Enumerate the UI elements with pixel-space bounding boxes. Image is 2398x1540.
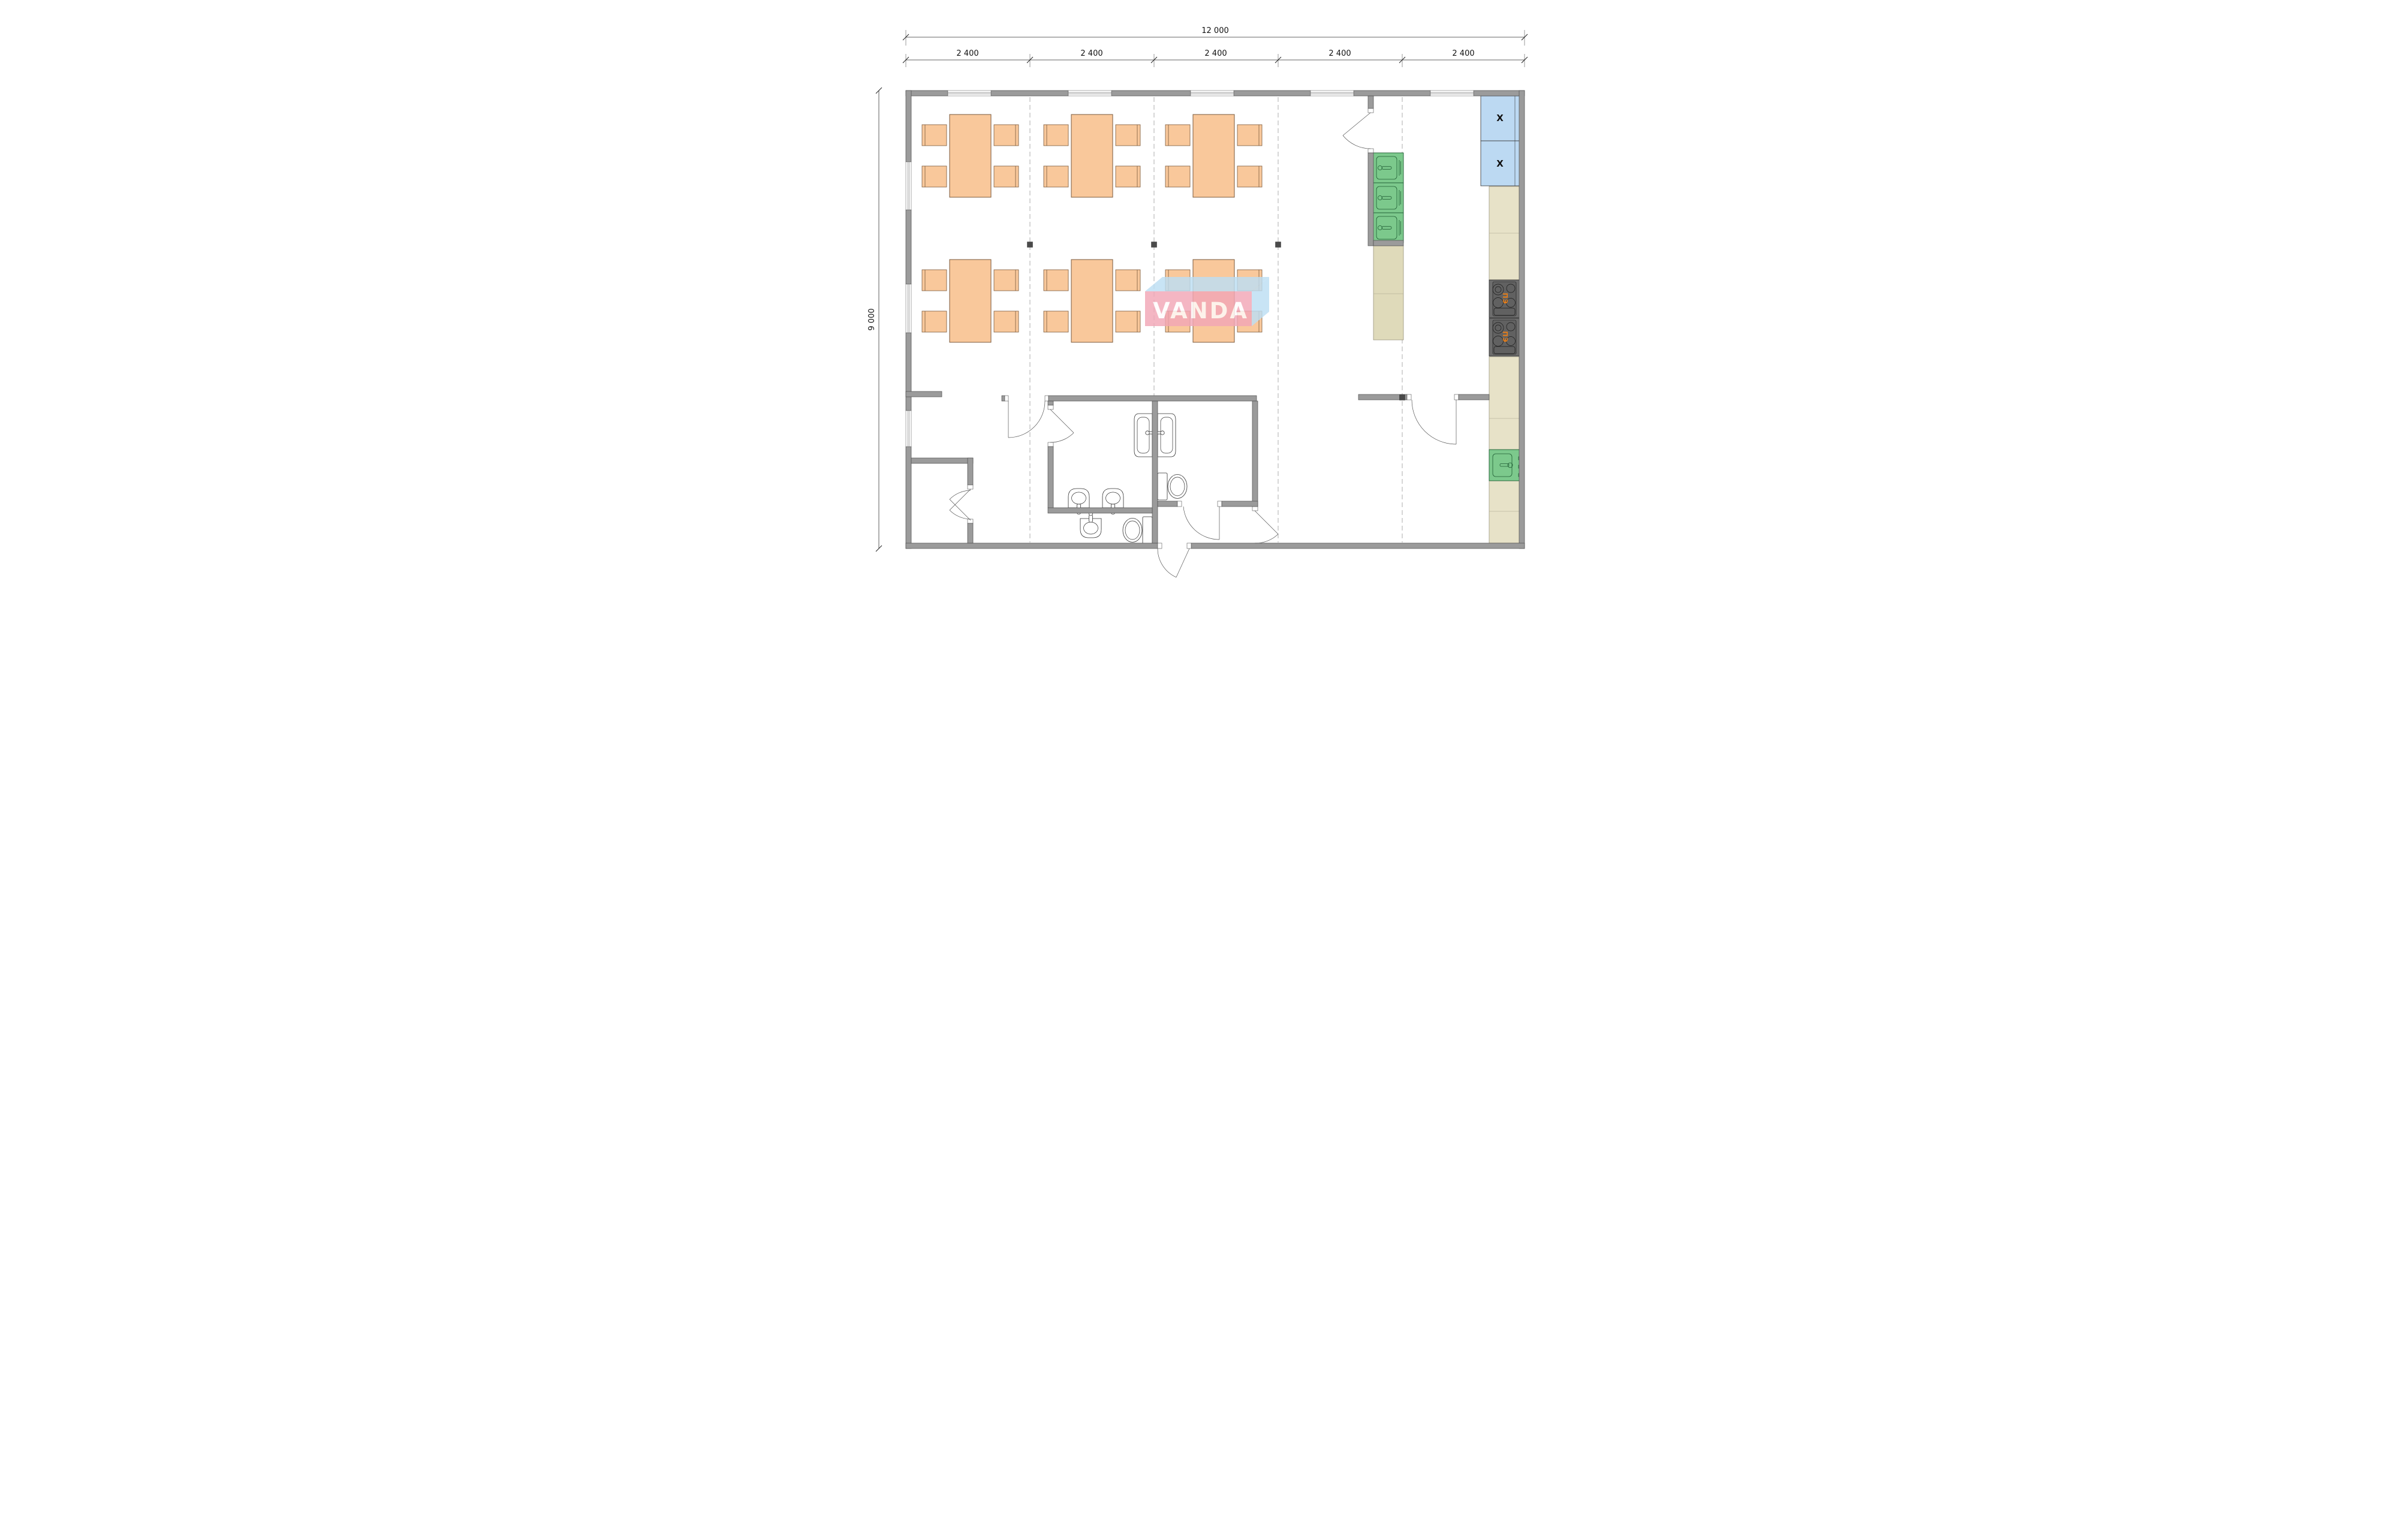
column-marker-icon bbox=[1400, 395, 1405, 400]
door-swing-icon bbox=[950, 490, 971, 520]
floor-plan-page: 12 000 2 400 2 400 2 400 2 400 2 400 9 0… bbox=[729, 0, 1669, 604]
overall-width-dimension: 12 000 bbox=[1201, 26, 1229, 35]
window-icon bbox=[1311, 91, 1354, 96]
window-icon bbox=[1068, 91, 1111, 96]
kitchen-equipment: X X ПЭ ПЭ bbox=[1370, 96, 1521, 543]
vanda-watermark: VANDA bbox=[1145, 277, 1269, 326]
bay-dimension: 2 400 bbox=[1328, 49, 1351, 58]
window-icon bbox=[906, 284, 911, 333]
fridge-mark: X bbox=[1496, 113, 1504, 123]
door-swing-icon bbox=[1412, 400, 1456, 444]
dining-table bbox=[922, 114, 1019, 197]
window-icon bbox=[906, 411, 911, 447]
window-icon bbox=[1191, 91, 1234, 96]
toilet-icon bbox=[1123, 517, 1152, 544]
fridge-mark: X bbox=[1496, 158, 1504, 169]
washbasin-icon bbox=[1157, 414, 1176, 457]
door-swing-icon bbox=[1343, 113, 1370, 149]
window-icon bbox=[1430, 91, 1474, 96]
column-marker-icon bbox=[1276, 242, 1281, 248]
dining-table bbox=[922, 260, 1019, 342]
window-icon bbox=[948, 91, 991, 96]
electric-stove-icon: ПЭ ПЭ bbox=[1489, 280, 1520, 356]
watermark-text: VANDA bbox=[1153, 298, 1249, 324]
window-icon bbox=[906, 162, 911, 210]
kitchen-sink-icon bbox=[1370, 153, 1403, 243]
column-marker-icon bbox=[1028, 242, 1033, 248]
fridge-icon: X X bbox=[1481, 96, 1520, 186]
floor-plan-drawing: 12 000 2 400 2 400 2 400 2 400 2 400 9 0… bbox=[729, 0, 1669, 604]
door-swing-icon bbox=[950, 489, 971, 519]
sanitary-fixtures bbox=[1068, 414, 1187, 544]
dining-table bbox=[1044, 114, 1140, 197]
door-swing-icon bbox=[1183, 507, 1219, 540]
dining-table bbox=[1165, 114, 1262, 197]
door-swing-icon bbox=[1008, 401, 1045, 438]
washbasin-icon bbox=[1134, 414, 1153, 457]
bay-dimension: 2 400 bbox=[1452, 49, 1474, 58]
door-swing-icon bbox=[1158, 549, 1189, 577]
overall-height-dimension: 9 000 bbox=[867, 308, 876, 330]
bay-dimension: 2 400 bbox=[1204, 49, 1227, 58]
stove-label: ПЭ bbox=[1501, 331, 1509, 342]
dining-table bbox=[1044, 260, 1140, 342]
door-swing-icon bbox=[1050, 409, 1074, 442]
door-swing-icon bbox=[1255, 511, 1278, 543]
kitchen-sink-icon bbox=[1489, 450, 1521, 481]
bay-dimension: 2 400 bbox=[1080, 49, 1102, 58]
column-marker-icon bbox=[1152, 242, 1157, 248]
washbasin-icon bbox=[1080, 512, 1101, 538]
stove-label: ПЭ bbox=[1501, 293, 1509, 304]
bay-dimension: 2 400 bbox=[956, 49, 978, 58]
toilet-icon bbox=[1158, 473, 1187, 500]
